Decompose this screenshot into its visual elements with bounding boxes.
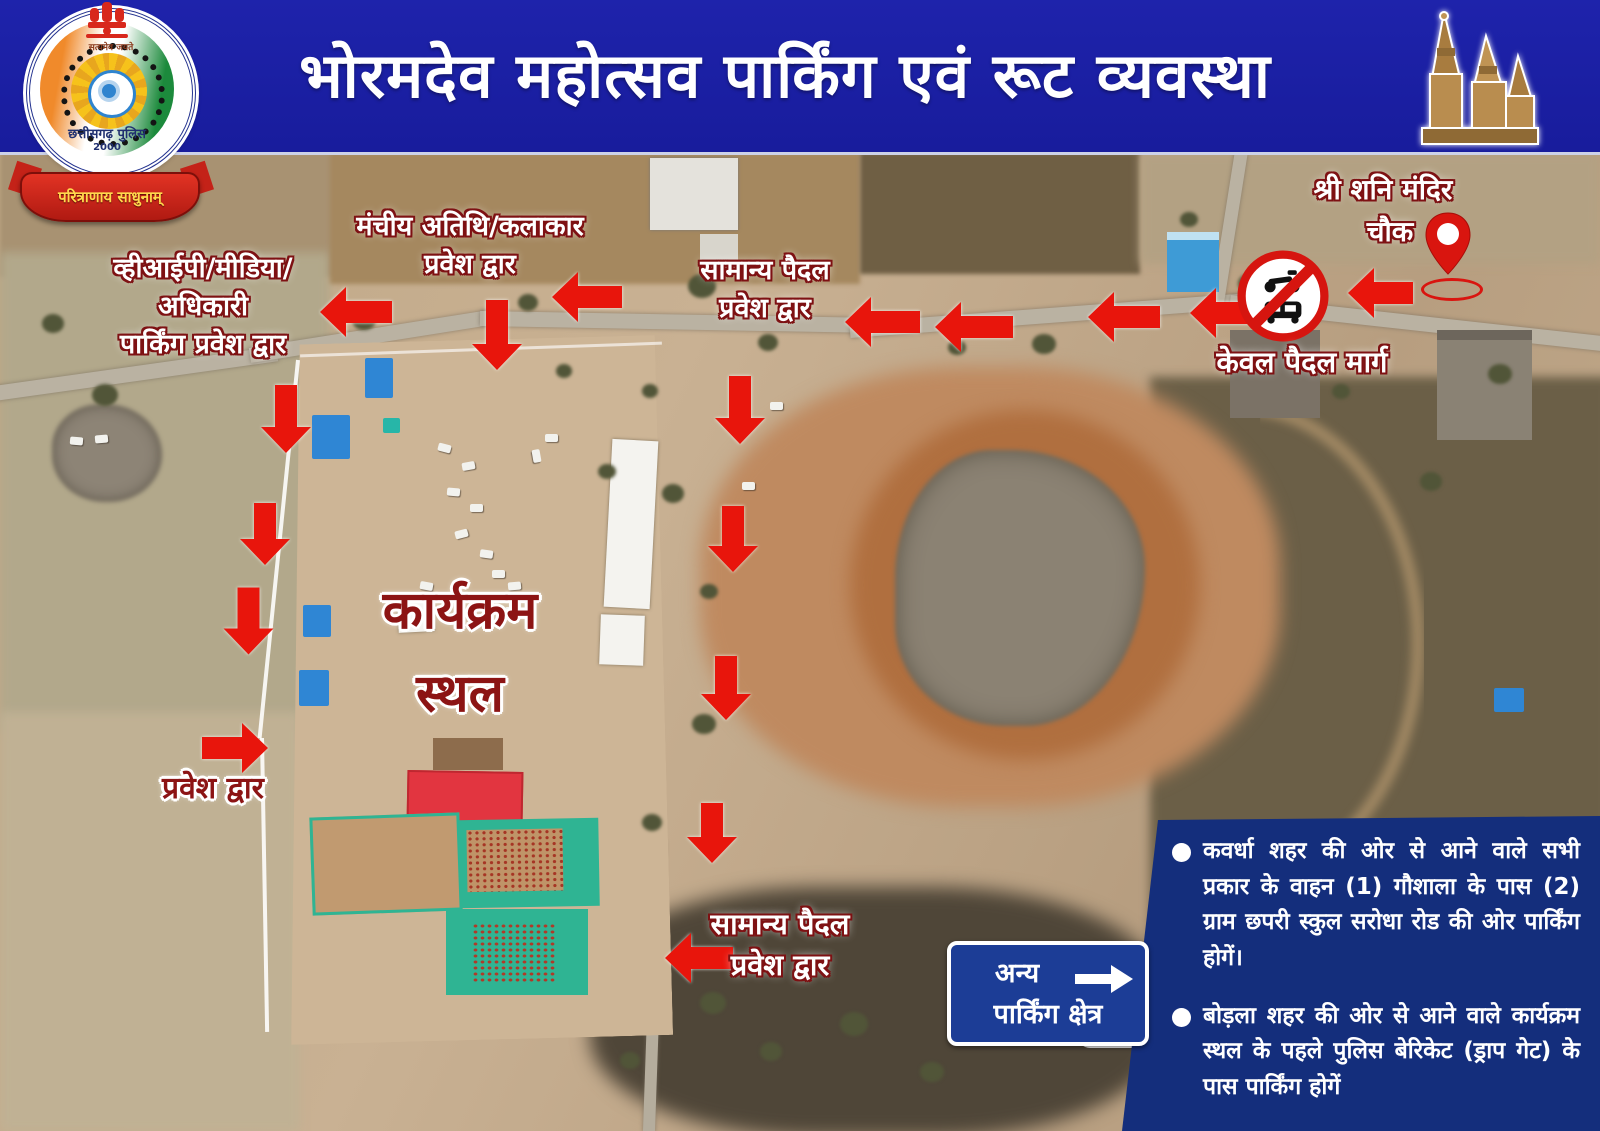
header-banner: भोरमदेव महोत्सव पार्किंग एवं रूट व्यवस्थ… — [0, 0, 1600, 155]
national-emblem-icon — [84, 0, 130, 40]
seating-block — [446, 909, 588, 995]
blue-tarp — [299, 670, 329, 706]
label-shani-mandir-line1: श्री शनि मंदिर — [1288, 170, 1478, 209]
label-line: प्रवेश द्वार — [672, 945, 888, 986]
tree — [700, 992, 726, 1014]
tree — [642, 384, 658, 398]
label-venue: कार्यक्रम स्थल — [340, 570, 580, 736]
info-bullet-text: बोड़ला शहर की ओर से आने वाले कार्यक्रम स… — [1203, 999, 1580, 1106]
label-line: सामान्य पैदल — [672, 904, 888, 945]
blue-tarp — [1494, 688, 1524, 712]
logo-org-name: छत्तीसगढ़ पुलिस — [16, 124, 198, 142]
terrain-dark-field — [860, 152, 1140, 274]
building — [650, 158, 738, 230]
route-arrow — [715, 376, 765, 444]
label-line: अधिकारी — [70, 288, 336, 326]
no-vehicles-sign-icon — [1237, 250, 1329, 342]
other-parking-line2: पार्किंग क्षेत्र — [951, 994, 1145, 1031]
tree — [1420, 472, 1442, 491]
pin-ground-ellipse — [1421, 278, 1483, 301]
label-entry-gate: प्रवेश द्वार — [128, 768, 298, 810]
label-general-gate-top: सामान्य पैदल प्रवेश द्वार — [660, 252, 870, 328]
parked-car — [545, 434, 558, 442]
label-line: प्रवेश द्वार — [660, 290, 870, 328]
route-arrow — [701, 656, 751, 720]
other-parking-sign: अन्य पार्किंग क्षेत्र — [947, 941, 1149, 1046]
label-general-gate-bottom: सामान्य पैदल प्रवेश द्वार — [672, 904, 888, 985]
label-line: स्थल — [340, 653, 580, 736]
tree — [758, 334, 778, 351]
route-arrow — [708, 506, 758, 572]
logo-ribbon: परित्राणाय साधुनाम् — [20, 172, 200, 222]
blue-tarp — [312, 415, 350, 459]
blue-roof-building — [1167, 232, 1219, 292]
label-stage-guest-gate: मंचीय अतिथि/कलाकार प्रवेश द्वार — [325, 208, 615, 284]
label-line: सामान्य पैदल — [660, 252, 870, 290]
label-line: मंचीय अतिथि/कलाकार — [325, 208, 615, 246]
tree — [92, 384, 118, 406]
building — [1437, 330, 1532, 440]
route-arrow — [261, 385, 311, 453]
parked-car — [742, 482, 755, 490]
tree — [662, 484, 684, 503]
route-arrow — [687, 803, 737, 863]
tree — [760, 1042, 782, 1061]
small-pond — [52, 404, 162, 502]
ashoka-chakra-icon — [88, 70, 136, 118]
label-vip-parking-gate: व्हीआईपी/मीडिया/ अधिकारी पार्किंग प्रवेश… — [70, 250, 336, 363]
label-line: व्हीआईपी/मीडिया/ — [70, 250, 336, 288]
info-bullet-text: कवर्धा शहर की ओर से आने वाले सभी प्रकार … — [1203, 834, 1580, 977]
label-line: कार्यक्रम — [340, 570, 580, 653]
parked-car — [770, 402, 783, 410]
poster: भोरमदेव महोत्सव पार्किंग एवं रूट व्यवस्थ… — [0, 0, 1600, 1131]
label-line: प्रवेश द्वार — [325, 246, 615, 284]
label-line: पार्किंग प्रवेश द्वार — [70, 326, 336, 364]
logo-ribbon-text: परित्राणाय साधुनाम् — [58, 187, 162, 207]
label-shani-mandir-line2: चौक — [1340, 212, 1440, 251]
bullet-dot-icon — [1172, 1008, 1191, 1027]
parked-car — [95, 434, 109, 443]
aerial-map: श्री शनि मंदिर चौक केवल पैदल मार्ग मंचीय… — [0, 152, 1600, 1131]
tree — [620, 1052, 640, 1069]
logo-motto-top: सत्यमेव जयते — [16, 40, 206, 53]
tree — [840, 1012, 868, 1036]
parked-car — [447, 487, 461, 496]
label-pedestrian-only: केवल पैदल मार्ग — [1192, 342, 1412, 383]
route-arrow — [202, 723, 268, 773]
tree — [556, 364, 572, 378]
route-arrow — [935, 302, 1013, 352]
logo-year: 2000 — [16, 142, 198, 153]
tree — [1032, 334, 1056, 354]
right-arrow-icon — [1075, 965, 1133, 993]
page-title: भोरमदेव महोत्सव पार्किंग एवं रूट व्यवस्थ… — [195, 0, 1375, 148]
blue-tarp — [365, 358, 393, 398]
route-arrow — [1088, 292, 1160, 342]
parked-car — [480, 549, 494, 559]
temple-illustration-icon — [1382, 8, 1542, 148]
route-arrow — [240, 503, 290, 565]
stage-structure — [433, 738, 503, 770]
tree — [642, 814, 662, 831]
white-tent — [599, 614, 645, 666]
blue-tarp — [383, 418, 400, 433]
parked-car — [470, 504, 483, 512]
police-logo: सत्यमेव जयते छत्तीसगढ़ पुलिस 2000 परित्र… — [16, 6, 206, 244]
info-bullet-row: कवर्धा शहर की ओर से आने वाले सभी प्रकार … — [1172, 834, 1580, 977]
info-bullet-row: बोड़ला शहर की ओर से आने वाले कार्यक्रम स… — [1172, 999, 1580, 1106]
parked-car — [70, 436, 84, 445]
tree — [42, 314, 64, 333]
bullet-dot-icon — [1172, 843, 1191, 862]
info-panel: कवर्धा शहर की ओर से आने वाले सभी प्रकार … — [1110, 816, 1600, 1131]
blue-tarp — [303, 605, 331, 637]
route-arrow — [472, 300, 522, 370]
seating-block — [458, 818, 600, 908]
seating-block — [309, 812, 462, 915]
route-arrow — [223, 588, 273, 655]
route-arrow — [1348, 268, 1413, 318]
